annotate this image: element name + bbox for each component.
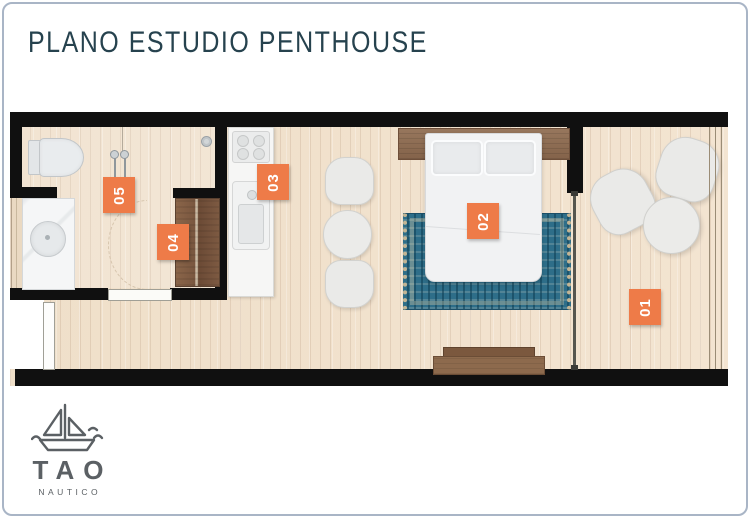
area-label-text: 05 [111,186,128,205]
burner [253,135,265,147]
burner [237,148,249,160]
area-label-03: 03 [257,164,289,200]
terrace-table [643,197,700,254]
area-label-text: 02 [475,212,492,231]
vanity-faucet [45,235,50,240]
area-label-text: 03 [265,173,282,192]
logo-brand-text: TAO [16,457,120,483]
stove-top [232,131,270,163]
area-label-04: 04 [157,224,189,260]
kitchenette-counter [228,127,274,297]
dining-chair [325,260,374,308]
wall [10,187,57,198]
wall [15,369,728,386]
area-label-02: 02 [467,203,499,239]
burner [237,135,249,147]
sailboat-logo-icon [31,402,105,456]
floor-plan: 01 02 03 04 05 [10,112,728,386]
floorplan-page: PLANO ESTUDIO PENTHOUSE [0,0,750,518]
door-handle [571,191,578,196]
pillow [431,140,483,176]
sliding-glass-door [573,193,576,369]
bathroom-door [108,289,172,301]
entry-opening [10,300,44,369]
brand-logo: TAO NAUTICO [16,402,120,497]
bench-seat [433,356,545,375]
wall [10,112,22,198]
kitchen-faucet [247,190,257,200]
dining-chair [325,157,374,205]
sink-basin [238,204,264,244]
wall [170,288,227,300]
door-handle [571,365,578,370]
entry-door [43,302,55,370]
shower-head [120,150,129,159]
wall [173,188,215,198]
shower-drain [201,136,212,147]
toilet-fixture [39,138,84,177]
logo-subtitle-text: NAUTICO [16,487,120,497]
area-label-01: 01 [629,289,661,325]
wall [10,112,728,127]
page-title: PLANO ESTUDIO PENTHOUSE [28,26,428,60]
pillow [484,140,536,176]
terrace-railing [709,127,723,369]
area-label-text: 01 [637,298,654,317]
area-label-text: 04 [165,233,182,252]
burner [253,148,265,160]
shower-head [110,150,119,159]
area-label-05: 05 [103,177,135,213]
dining-table [323,210,372,259]
